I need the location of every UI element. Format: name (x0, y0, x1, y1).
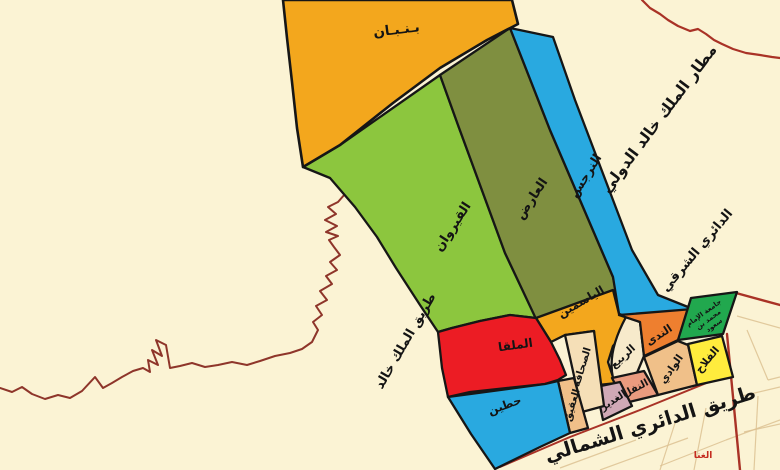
riyadh-north-districts-map: بـنـبـان القيروان العارض النرجس الياسمين… (0, 0, 780, 470)
label-ghina: الغنا (694, 451, 713, 461)
